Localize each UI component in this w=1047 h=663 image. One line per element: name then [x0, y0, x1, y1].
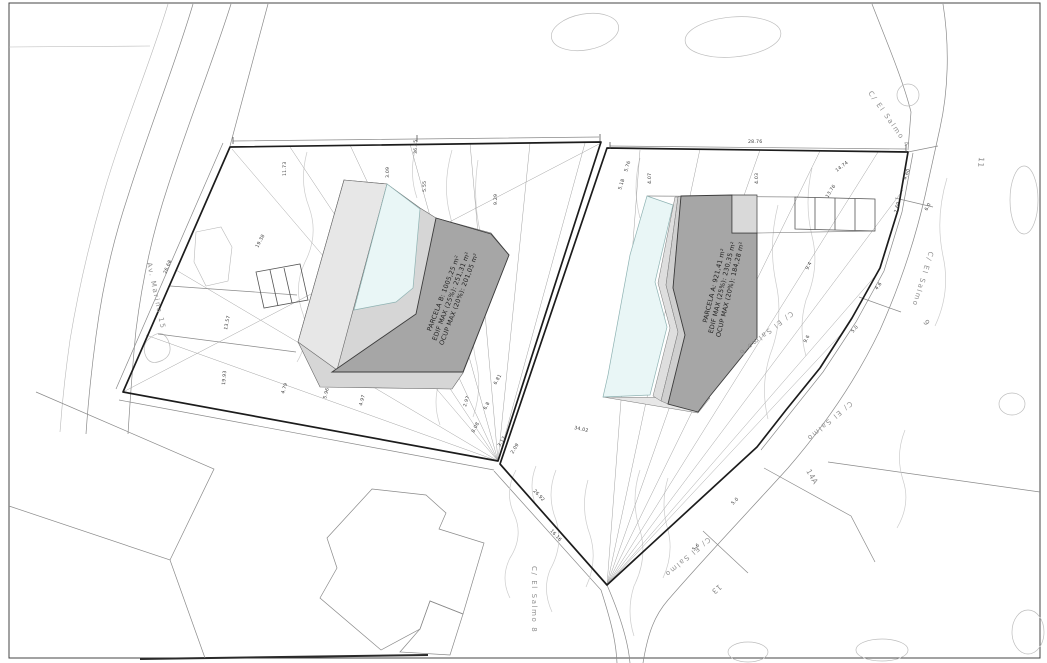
dimension-label: 5.55	[422, 181, 428, 192]
house-outline	[320, 489, 484, 655]
dimension-label: 26.68	[162, 259, 173, 275]
neighbor-rooms	[795, 197, 875, 231]
dimension-label: 6.0	[924, 202, 933, 212]
survey-fan-lines	[123, 143, 903, 585]
dimension-label: 14.74	[835, 160, 850, 174]
lot-division	[703, 531, 748, 573]
vegetation-blob	[897, 84, 919, 106]
dimension-label: 19.38	[254, 233, 266, 249]
street-c-el-salmo	[119, 4, 1040, 663]
lot-number-label: 14A	[804, 468, 820, 487]
dimension-label: 9.6	[802, 334, 811, 344]
building-a-annex	[732, 195, 757, 233]
dimension-label: 5.18	[617, 178, 626, 191]
steps-b	[256, 264, 308, 308]
neighbour-parcel-line	[170, 560, 205, 658]
dimension-label: 11.73	[282, 162, 288, 176]
contour-line	[584, 480, 593, 587]
street-label: C/ El Salmo	[910, 250, 934, 307]
avenue-edge	[230, 4, 268, 146]
lot-number-label: 13	[710, 582, 724, 596]
site-plan-canvas: 36.453.095.559.2911.7326.6819.3813.5719.…	[0, 0, 1047, 663]
dimension-label: 3.09	[385, 167, 391, 178]
dimension-label: 6.8	[482, 401, 491, 411]
house-annex	[400, 601, 463, 655]
dimension-label: 5.76	[623, 160, 632, 173]
dimension-label: 13.57	[223, 315, 232, 330]
neighbour-parcel	[9, 392, 214, 560]
lot-division	[764, 468, 875, 562]
small-structures	[194, 227, 308, 308]
dimension-label: 9.4	[804, 261, 813, 271]
dimension-label: 5.96	[322, 387, 331, 399]
avenue-edge	[60, 4, 168, 432]
dimension-label: 4.97	[358, 394, 367, 406]
contour-line	[935, 178, 947, 326]
contour-line	[764, 205, 778, 419]
salmo8-far-edge	[119, 400, 494, 470]
dimension-label: 4.07	[647, 173, 653, 184]
frame	[9, 3, 1040, 659]
vegetation-blob	[999, 393, 1025, 415]
lot-number-label: 11	[976, 157, 986, 168]
vegetation-blob	[728, 642, 768, 662]
vegetation-blob	[683, 13, 782, 61]
contour-line	[636, 158, 640, 218]
dimension-label: 19.93	[221, 370, 228, 385]
dimension-label: 6.81	[493, 373, 504, 386]
dimension-label: 4.79	[280, 382, 289, 395]
dimension-label: 16.16	[549, 528, 563, 543]
contour-line	[412, 150, 417, 198]
dimension-label: 13.76	[825, 184, 838, 199]
contour-line	[505, 470, 518, 598]
shrub	[144, 333, 170, 362]
bottom-left-parcels	[9, 392, 214, 658]
contour-line	[897, 430, 906, 528]
rooms-dividers	[815, 198, 855, 231]
road-avenue	[60, 4, 268, 434]
vegetation-blob	[548, 8, 621, 55]
lot-number-label: 9	[921, 318, 931, 327]
street-label: C/ El Salmo 4	[866, 90, 911, 150]
dimension-label: 8.08	[470, 421, 481, 434]
parcel-a-fills	[603, 195, 875, 413]
context-blobs	[144, 8, 1044, 662]
site-plan-page: 36.453.095.559.2911.7326.6819.3813.5719.…	[0, 0, 1047, 663]
avenue-edge	[86, 4, 193, 434]
vegetation-blob	[1010, 166, 1038, 234]
vegetation-blob	[1012, 610, 1044, 654]
street-label: C/ El Salmo	[805, 399, 854, 442]
lot-division	[908, 146, 938, 152]
lot-division	[828, 462, 1040, 492]
frame-margin-line	[9, 46, 150, 47]
dimension-label: 5.0	[850, 324, 860, 334]
steps-dividers	[270, 268, 292, 306]
dimension-label: 36.45	[413, 140, 419, 154]
dimension-label: 5.0	[730, 496, 740, 506]
dimension-label: 34.02	[574, 425, 589, 434]
dimension-label: 2.09	[510, 442, 521, 455]
dimension-label: 9.29	[493, 194, 499, 205]
dimension-label: 2.69	[893, 201, 902, 213]
parcel-b-fills	[298, 180, 509, 389]
street-continuation	[607, 585, 630, 663]
frame-border	[9, 3, 1040, 658]
street-label: C/ El Salmo 8	[530, 566, 538, 633]
dimension-label: 4.03	[754, 173, 760, 184]
salmo8-far-edge	[494, 471, 617, 663]
dimension-label: 4.6	[874, 281, 884, 291]
steps-outline	[256, 264, 308, 308]
ruin-outline	[194, 227, 232, 286]
dimension-label: 28.76	[748, 139, 762, 145]
salmo4-edge	[940, 4, 947, 128]
dimension-label: 26.92	[532, 488, 546, 503]
salmo-near-offset	[761, 153, 913, 450]
labels: 36.453.095.559.2911.7326.6819.3813.5719.…	[145, 90, 986, 634]
avenue-edge	[128, 4, 231, 434]
